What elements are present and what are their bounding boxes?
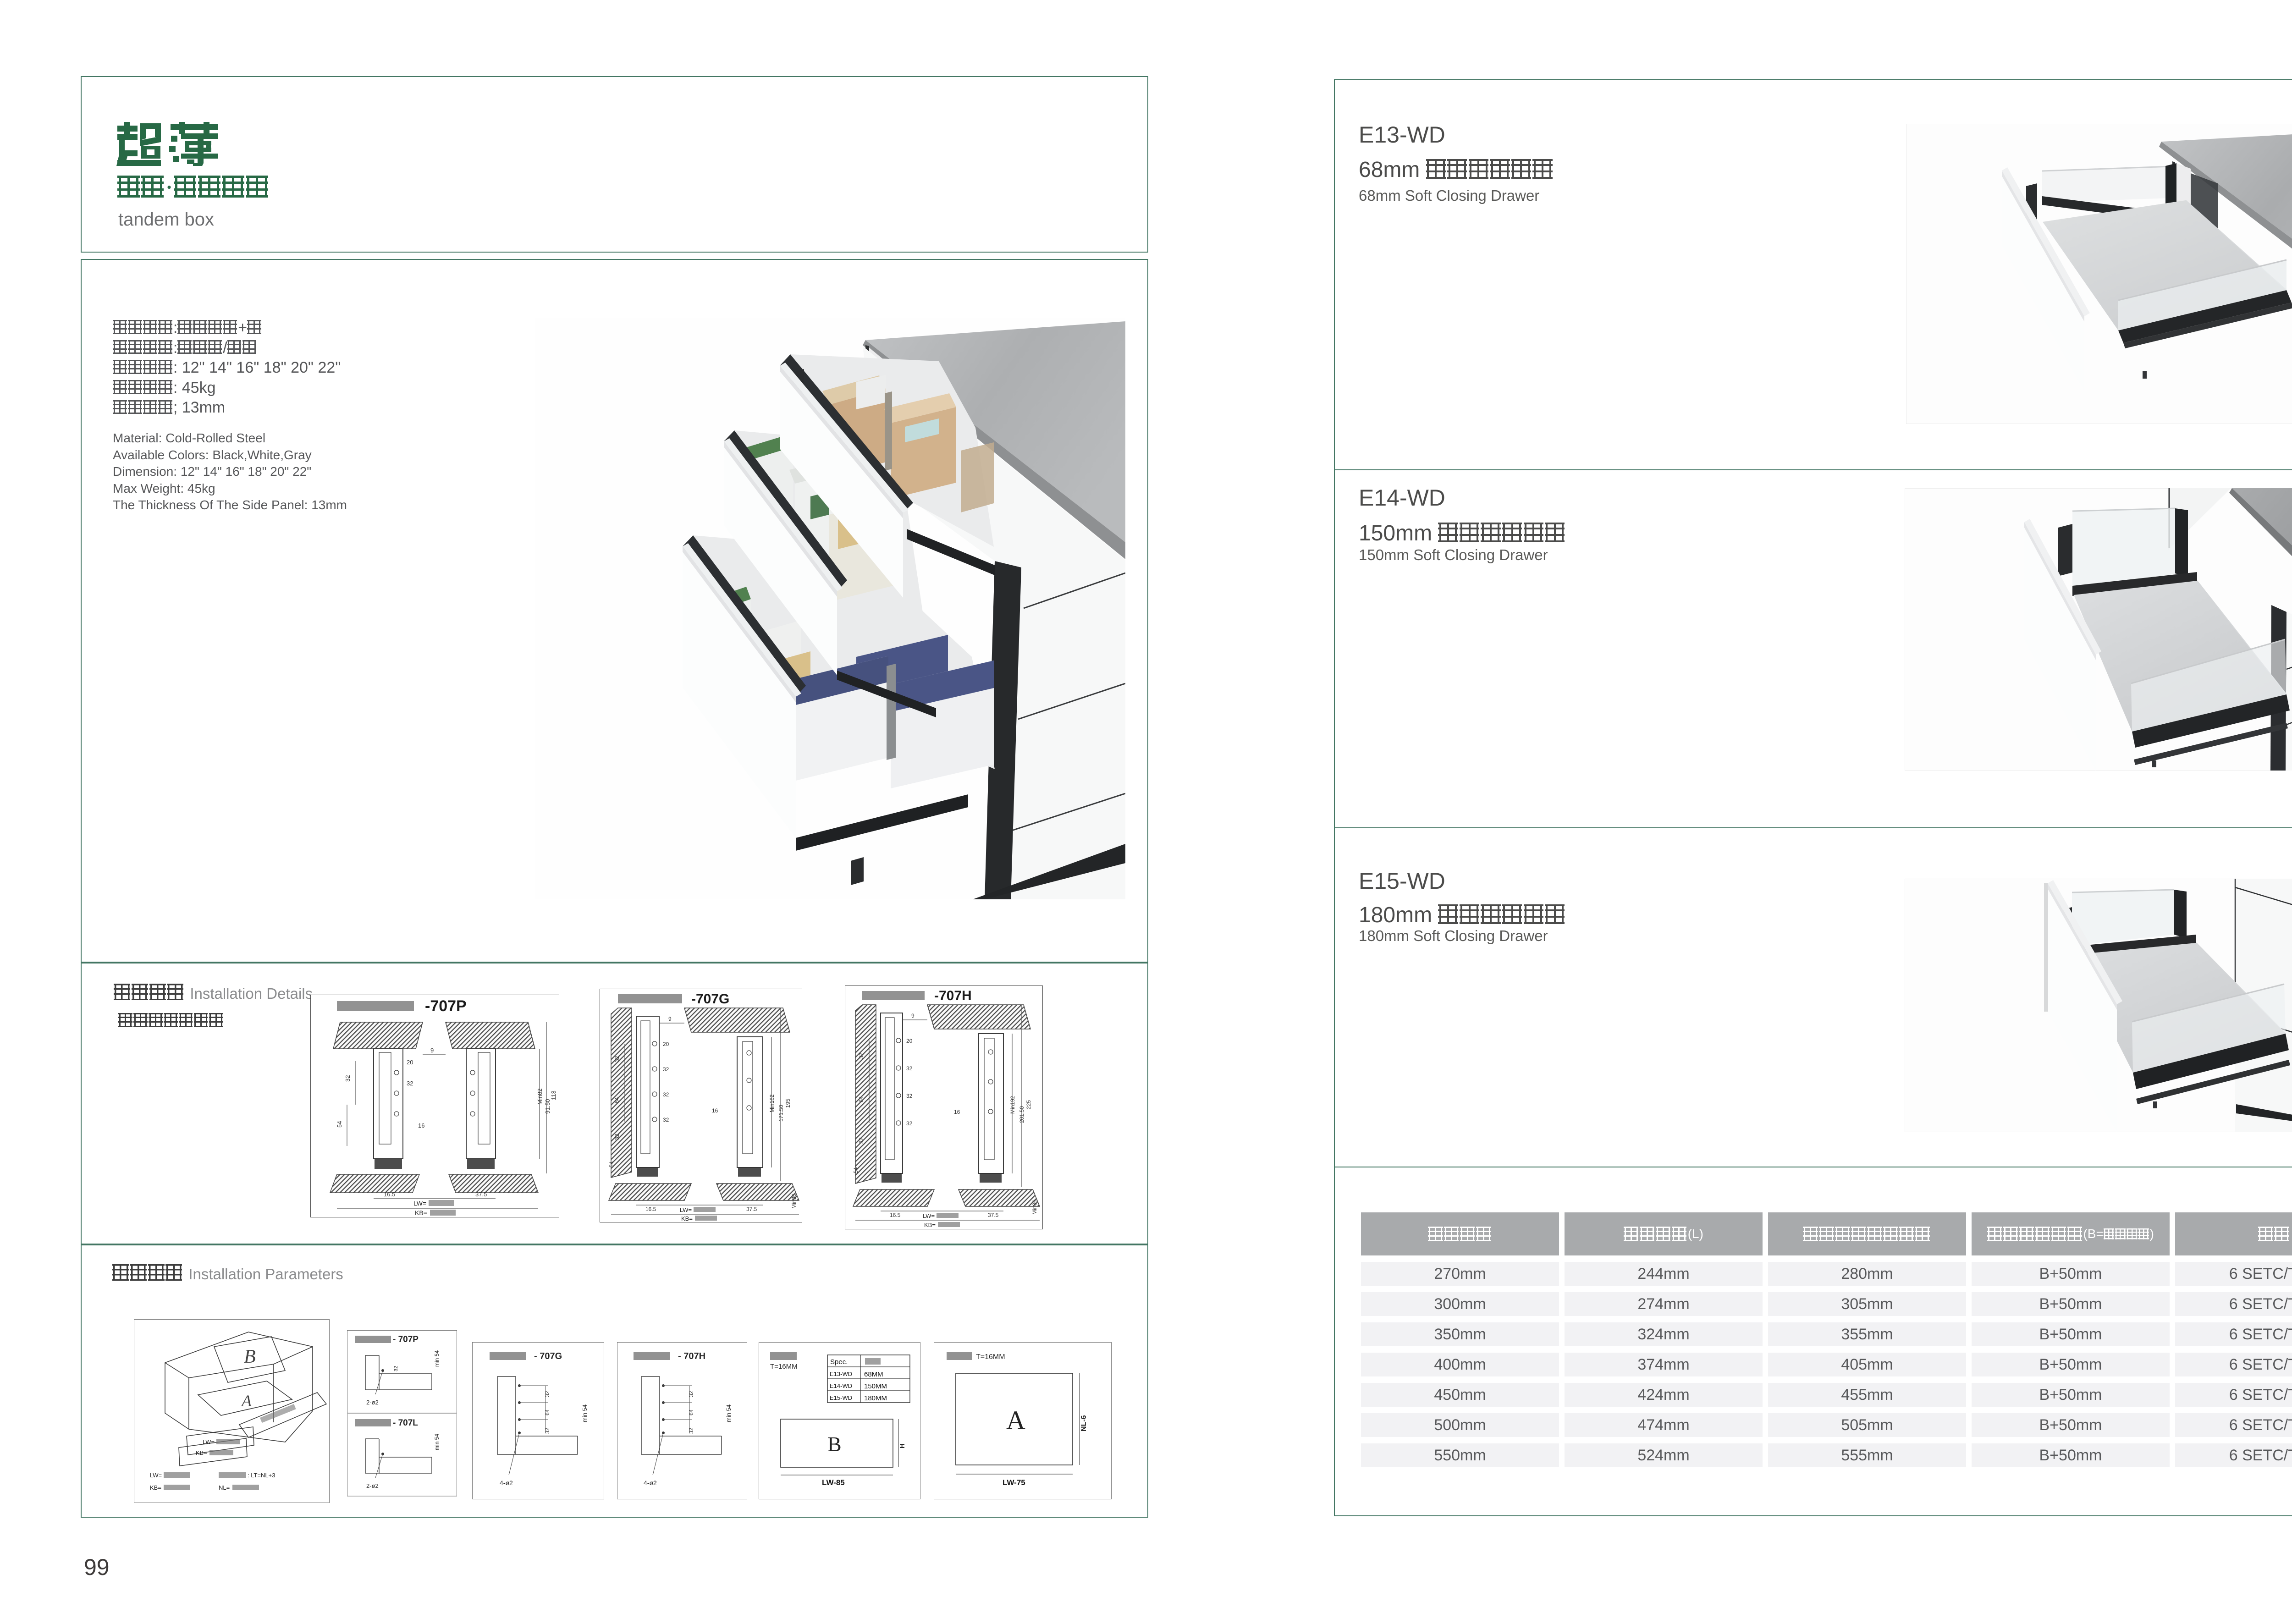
svg-text:64: 64 (544, 1409, 551, 1415)
svg-text:9: 9 (911, 1013, 915, 1019)
svg-text:64: 64 (688, 1409, 694, 1415)
svg-text:16: 16 (418, 1122, 424, 1129)
svg-text:32: 32 (858, 1052, 865, 1059)
svg-text:Min162: Min162 (769, 1094, 775, 1112)
svg-text:Min36: Min36 (1031, 1200, 1038, 1215)
svg-text:64: 64 (858, 1096, 865, 1102)
svg-text:LW=: LW= (150, 1472, 162, 1479)
svg-text:16.5: 16.5 (384, 1191, 395, 1198)
svg-text:- 707G: - 707G (534, 1351, 562, 1361)
svg-text:: LT=NL+3: : LT=NL+3 (248, 1472, 275, 1479)
svg-text:LW=: LW= (203, 1438, 215, 1445)
svg-text:32: 32 (614, 1134, 620, 1140)
svg-text:16: 16 (712, 1107, 718, 1114)
svg-text:LW-85: LW-85 (822, 1478, 845, 1487)
svg-text:KB=: KB= (681, 1215, 693, 1222)
svg-text:min 54: min 54 (434, 1350, 440, 1367)
svg-text:KB=: KB= (196, 1449, 207, 1456)
svg-text:T=16MM: T=16MM (976, 1353, 1005, 1361)
svg-text:32: 32 (663, 1117, 669, 1123)
svg-text:LW=: LW= (923, 1212, 935, 1219)
svg-text:NL-6: NL-6 (1080, 1415, 1088, 1431)
svg-text:A: A (241, 1392, 252, 1410)
svg-text:9: 9 (668, 1016, 672, 1022)
svg-text:-707P: -707P (425, 997, 467, 1015)
svg-text:LW=: LW= (680, 1206, 692, 1213)
svg-text:4-ø2: 4-ø2 (644, 1479, 657, 1486)
svg-text:54: 54 (853, 1167, 859, 1173)
svg-text:32: 32 (344, 1075, 351, 1082)
svg-text:54: 54 (608, 1161, 615, 1167)
svg-text:E13-WD: E13-WD (830, 1371, 852, 1377)
svg-text:-707G: -707G (691, 991, 729, 1007)
svg-text:min 54: min 54 (725, 1404, 732, 1422)
svg-text:KB=: KB= (150, 1484, 161, 1491)
svg-text:20: 20 (663, 1041, 669, 1047)
svg-text:9: 9 (430, 1047, 434, 1054)
svg-text:32: 32 (906, 1120, 913, 1127)
svg-text:16.5: 16.5 (645, 1206, 656, 1212)
svg-text:32: 32 (393, 1366, 399, 1371)
svg-text:32: 32 (688, 1427, 694, 1434)
svg-text:LW-75: LW-75 (1003, 1478, 1025, 1487)
svg-text:2-ø2: 2-ø2 (366, 1482, 379, 1489)
svg-text:37.5: 37.5 (475, 1191, 487, 1198)
svg-text:32: 32 (544, 1391, 551, 1397)
svg-text:A: A (1006, 1405, 1025, 1435)
svg-text:32: 32 (906, 1093, 913, 1099)
svg-text:E14-WD: E14-WD (830, 1382, 852, 1389)
svg-text:16.5: 16.5 (890, 1212, 901, 1218)
svg-text:Spec.: Spec. (830, 1358, 848, 1366)
svg-text:- 707H: - 707H (678, 1351, 705, 1361)
svg-text:150MM: 150MM (864, 1382, 887, 1390)
svg-text:32: 32 (407, 1080, 413, 1087)
svg-text:KB=: KB= (924, 1222, 936, 1228)
svg-text:32: 32 (663, 1066, 669, 1073)
svg-text:B: B (244, 1346, 256, 1367)
svg-text:Min36: Min36 (791, 1194, 797, 1209)
svg-text:min 54: min 54 (581, 1404, 588, 1422)
svg-text:64: 64 (614, 1097, 620, 1103)
svg-text:T=16MM: T=16MM (770, 1363, 798, 1371)
svg-text:- 707L: - 707L (393, 1418, 418, 1428)
svg-text:201.50: 201.50 (1019, 1106, 1025, 1123)
svg-text:113: 113 (550, 1090, 557, 1100)
svg-text:54: 54 (336, 1121, 343, 1128)
svg-text:32: 32 (663, 1091, 669, 1098)
svg-text:2-ø2: 2-ø2 (366, 1399, 379, 1406)
svg-text:32: 32 (858, 1137, 865, 1144)
svg-text:Min82: Min82 (536, 1089, 543, 1105)
svg-text:4-ø2: 4-ø2 (500, 1479, 513, 1486)
svg-text:NL=: NL= (219, 1484, 230, 1491)
svg-text:20: 20 (407, 1059, 413, 1066)
svg-text:min 54: min 54 (434, 1434, 440, 1450)
svg-text:91.50: 91.50 (544, 1099, 551, 1114)
svg-text:32: 32 (688, 1391, 694, 1397)
svg-text:- 707P: - 707P (393, 1335, 419, 1344)
svg-text:B: B (827, 1432, 842, 1456)
svg-text:KB=: KB= (415, 1209, 427, 1217)
svg-text:180MM: 180MM (864, 1394, 887, 1402)
svg-text:225: 225 (1025, 1100, 1032, 1109)
svg-text:32: 32 (906, 1065, 913, 1072)
svg-text:171.50: 171.50 (778, 1105, 784, 1122)
svg-text:-707H: -707H (934, 988, 972, 1003)
svg-text:37.5: 37.5 (746, 1206, 757, 1212)
svg-text:20: 20 (906, 1038, 913, 1044)
svg-text:195: 195 (785, 1099, 791, 1108)
svg-text:32: 32 (544, 1427, 551, 1434)
svg-text:16: 16 (954, 1109, 960, 1115)
svg-text:Min192: Min192 (1009, 1096, 1016, 1114)
svg-text:37.5: 37.5 (988, 1212, 999, 1218)
svg-text:E15-WD: E15-WD (830, 1394, 852, 1401)
svg-text:32: 32 (614, 1056, 620, 1062)
svg-text:LW=: LW= (413, 1200, 426, 1207)
svg-text:68MM: 68MM (864, 1371, 883, 1378)
svg-text:H: H (898, 1443, 906, 1448)
